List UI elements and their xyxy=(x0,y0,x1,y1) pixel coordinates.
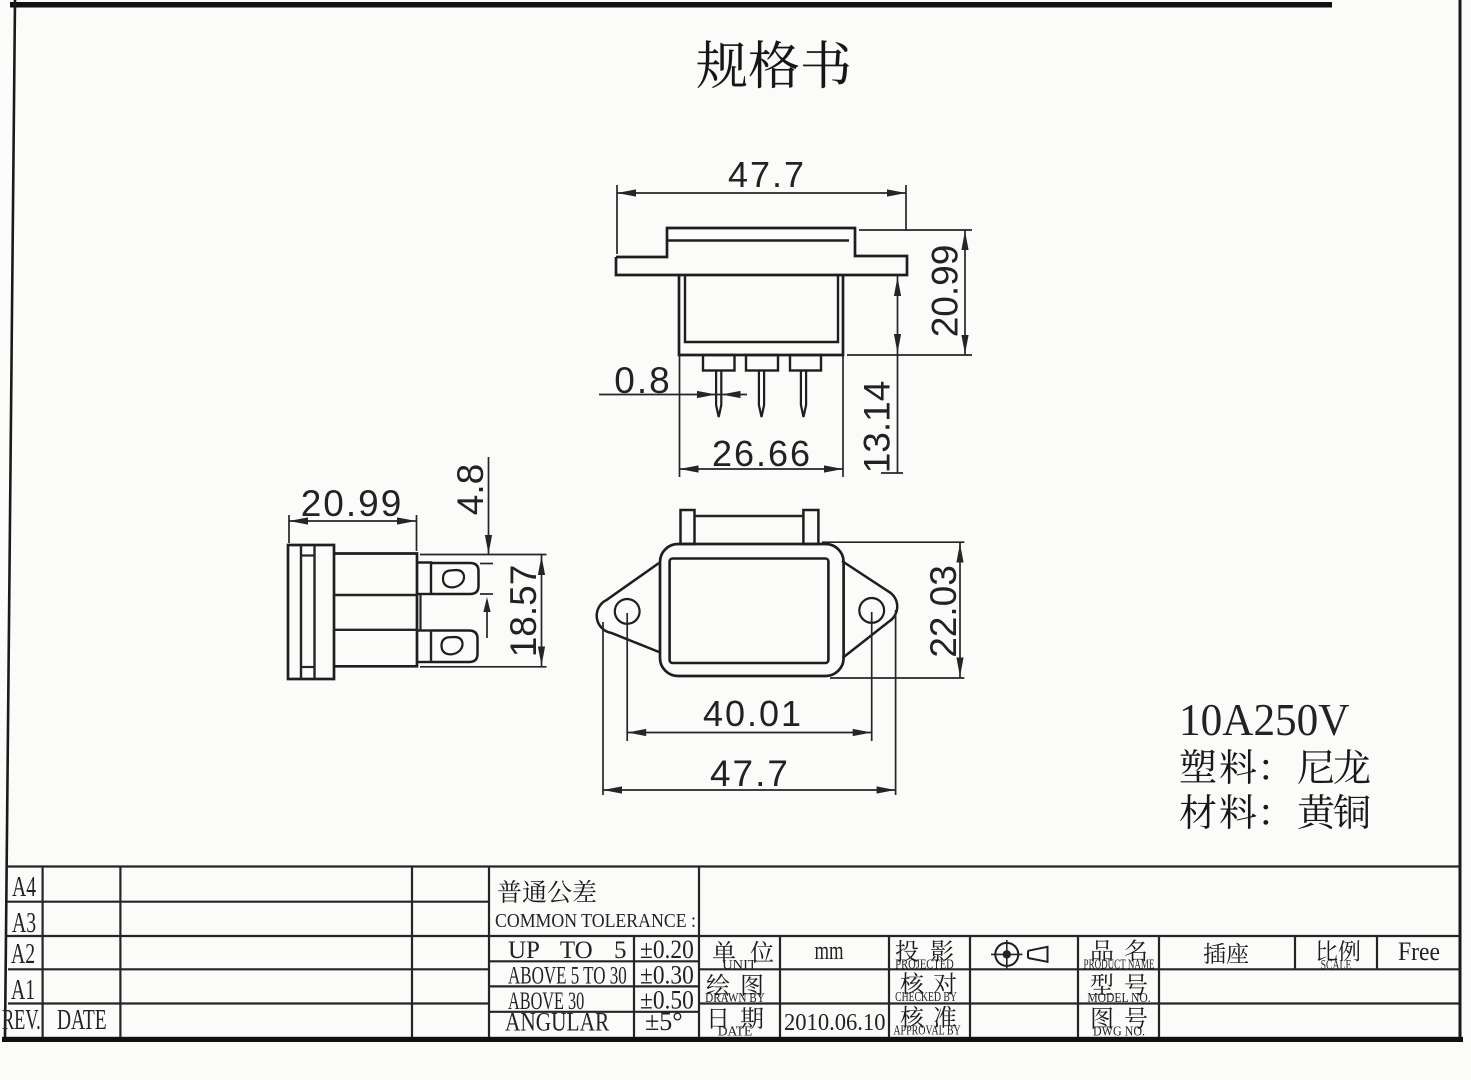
svg-text:4.8: 4.8 xyxy=(450,464,491,515)
svg-text:ABOVE 5 TO 30: ABOVE 5 TO 30 xyxy=(508,961,627,989)
svg-text:mm: mm xyxy=(814,936,843,965)
svg-text:±0.20: ±0.20 xyxy=(640,936,694,964)
svg-text:18.57: 18.57 xyxy=(503,565,544,658)
svg-text:UP TO 5: UP TO 5 xyxy=(508,937,626,964)
svg-text:APPROVAL BY: APPROVAL BY xyxy=(893,1022,961,1038)
svg-text:Free: Free xyxy=(1398,938,1440,966)
svg-text:PRODUCT NAME: PRODUCT NAME xyxy=(1084,958,1155,972)
svg-text:A2: A2 xyxy=(11,938,35,970)
svg-text:20.99: 20.99 xyxy=(925,245,966,338)
svg-text:47.7: 47.7 xyxy=(710,753,790,794)
svg-text:10A250V: 10A250V xyxy=(1179,694,1350,746)
svg-text:COMMON TOLERANCE :: COMMON TOLERANCE : xyxy=(495,910,696,932)
svg-text:±5°: ±5° xyxy=(645,1007,683,1036)
svg-text:DRAWN BY: DRAWN BY xyxy=(705,990,765,1005)
svg-text:13.14: 13.14 xyxy=(857,381,898,474)
svg-text:20.99: 20.99 xyxy=(301,483,404,524)
svg-text:UNIT: UNIT xyxy=(722,958,757,972)
svg-text:CHECKED BY: CHECKED BY xyxy=(895,990,957,1005)
svg-text:DWG NO.: DWG NO. xyxy=(1093,1024,1145,1039)
svg-text:REV.: REV. xyxy=(2,1004,41,1036)
svg-text:DATE: DATE xyxy=(718,1024,753,1039)
svg-text:DATE: DATE xyxy=(57,1004,107,1036)
svg-text:ANGULAR: ANGULAR xyxy=(505,1009,609,1037)
svg-text:A4: A4 xyxy=(12,871,36,903)
svg-text:22.03: 22.03 xyxy=(923,565,964,658)
svg-text:PROJECTED: PROJECTED xyxy=(895,956,954,972)
svg-text:47.7: 47.7 xyxy=(728,154,806,195)
svg-text:A1: A1 xyxy=(11,974,35,1006)
svg-text:SCALE: SCALE xyxy=(1321,958,1352,973)
svg-text:2010.06.10: 2010.06.10 xyxy=(784,1009,885,1036)
svg-text:26.66: 26.66 xyxy=(712,433,812,474)
svg-text:MODEL NO.: MODEL NO. xyxy=(1087,990,1150,1005)
svg-text:40.01: 40.01 xyxy=(703,693,803,734)
svg-text:A3: A3 xyxy=(12,907,36,939)
